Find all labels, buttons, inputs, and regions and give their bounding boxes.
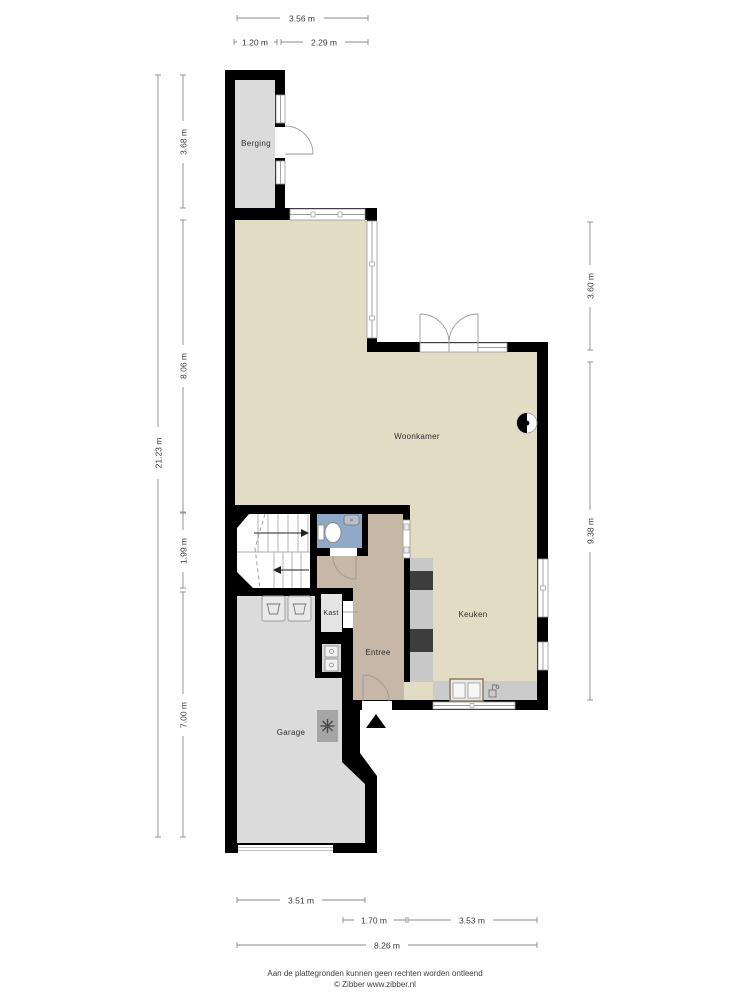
footer-copyright: © Zibber www.zibber.nl [334,980,416,989]
dimension-bottom-seg2: 1.70 m [343,914,406,926]
dimension-right-seg2: 9.38 m [584,362,596,700]
svg-text:1.20 m: 1.20 m [242,38,268,48]
label-garage: Garage [277,728,306,737]
washing-machine-icon [262,596,285,621]
door-french-garden [420,314,478,352]
svg-text:7.00 m: 7.00 m [179,702,189,728]
window-woonkamer-top [290,209,365,220]
svg-text:3.51 m: 3.51 m [288,896,314,906]
dimension-left-seg3: 1.99 m [177,513,189,588]
floorplan-page: Berging Woonkamer Keuken Entree Kast Gar… [0,0,750,1000]
label-kast: Kast [323,610,338,617]
dimension-bottom-seg1: 3.51 m [237,894,365,906]
svg-text:1.99 m: 1.99 m [179,538,189,564]
toilet-icon [318,523,341,543]
label-keuken: Keuken [459,610,488,619]
dimension-top-total: 3.56 m [237,12,368,24]
garage-door [238,845,333,853]
label-entree: Entree [365,648,391,657]
label-berging: Berging [241,139,271,148]
svg-text:8.26 m: 8.26 m [374,941,400,951]
window-woonkamer-east [367,221,377,338]
kitchen-appliance-top [410,571,433,590]
kitchen-appliance-bottom [410,629,433,652]
window-berging-1 [276,95,285,123]
washing-machine-icon-2 [288,596,311,621]
svg-text:3.68 m: 3.68 m [179,129,189,155]
passage-frame [403,520,410,558]
kitchen-counter-bottom [433,681,537,700]
dimension-right-seg1: 3.60 m [584,222,596,350]
svg-text:3.53 m: 3.53 m [459,916,485,926]
footer-disclaimer: Aan de plattegronden kunnen geen rechten… [267,969,482,978]
kitchen-sink [450,679,483,701]
window-keuken-east-2 [538,642,548,670]
dimension-left-seg4: 7.00 m [177,592,189,837]
window-berging-2 [276,161,285,184]
kitchen-divider-wall [404,558,410,682]
window-keuken-south [433,702,515,709]
kitchen-divider-post [403,505,410,520]
boiler-icon [317,710,338,742]
dimension-bottom-seg3: 3.53 m [408,914,537,926]
svg-text:9.38 m: 9.38 m [586,518,596,544]
svg-text:21.23 m: 21.23 m [154,438,164,469]
dimension-bottom-total: 8.26 m [237,939,537,951]
svg-text:3.60 m: 3.60 m [586,273,596,299]
window-keuken-east-1 [538,559,548,617]
dimension-left-seg1: 3.68 m [177,75,189,208]
label-woonkamer: Woonkamer [394,432,440,441]
fireplace-icon [517,413,537,433]
svg-text:3.56 m: 3.56 m [289,14,315,24]
svg-text:8.06 m: 8.06 m [179,353,189,379]
door-berging [275,126,313,158]
entrance-arrow-icon [366,714,386,728]
dimension-left-seg2: 8.06 m [177,220,189,512]
window-sill-garden [478,343,507,352]
svg-text:2.29 m: 2.29 m [311,38,337,48]
room-stairs [237,514,310,588]
dimension-top-seg1: 1.20 m [234,36,277,48]
floorplan-canvas: Berging Woonkamer Keuken Entree Kast Gar… [0,0,750,1000]
dimension-top-seg2: 2.29 m [281,36,368,48]
svg-text:1.70 m: 1.70 m [361,916,387,926]
dimension-left-total: 21.23 m [152,75,164,837]
sink-icon [344,515,359,525]
